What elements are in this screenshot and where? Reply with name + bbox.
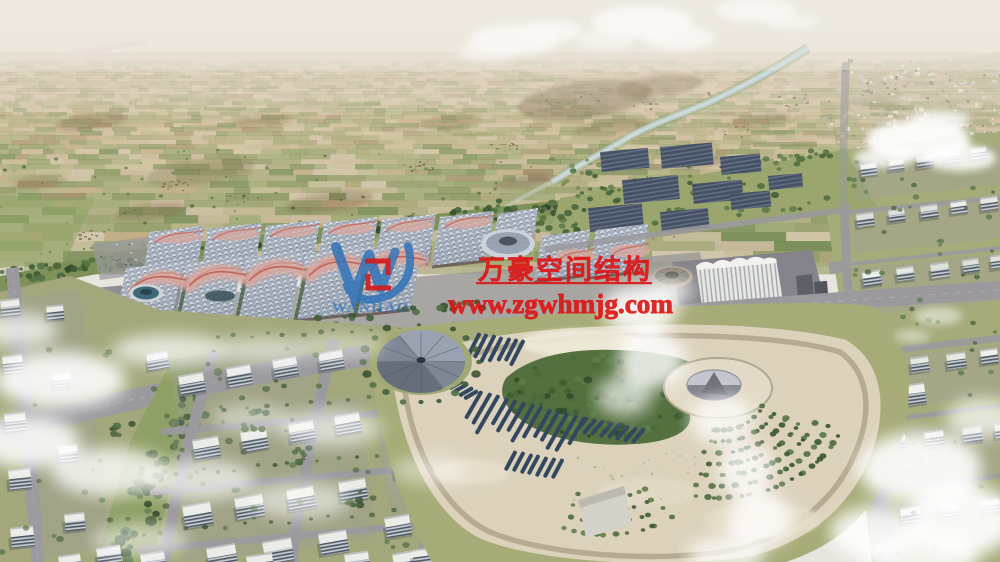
- svg-text:www.zgwhmjg.com: www.zgwhmjg.com: [448, 289, 673, 319]
- svg-text:WANHAO: WANHAO: [332, 300, 410, 316]
- svg-text:万豪空间结构: 万豪空间结构: [478, 254, 652, 285]
